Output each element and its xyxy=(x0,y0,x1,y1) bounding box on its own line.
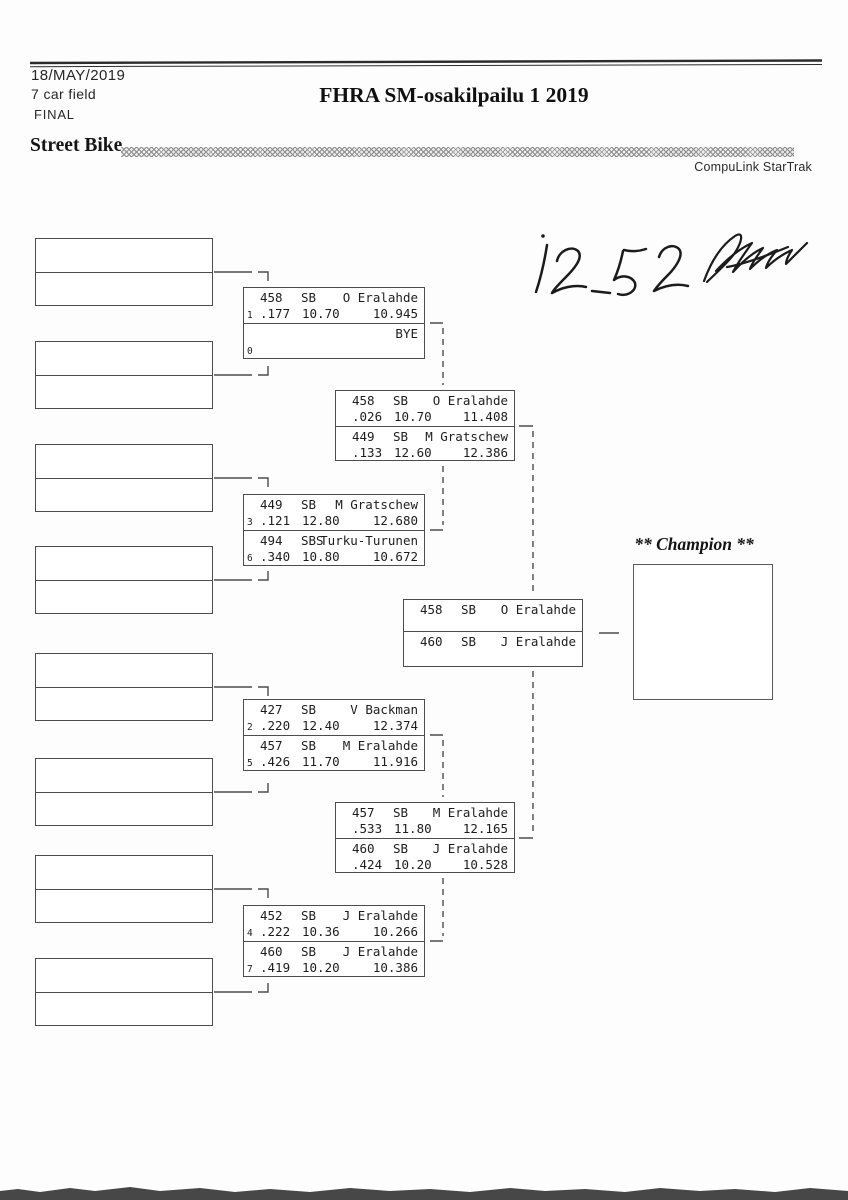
match-line-ids: 460SBJ Eralahde xyxy=(336,841,514,857)
entry-box-divider xyxy=(36,342,212,376)
match-box: 452SBJ Eralahde4.22210.3610.266460SBJ Er… xyxy=(243,905,425,977)
class-name: Street Bike xyxy=(30,135,122,157)
field-drv: M Gratschew xyxy=(335,497,418,512)
field-cls: SB xyxy=(393,805,408,820)
round-label: FINAL xyxy=(31,107,125,122)
field-et: 11.70 xyxy=(302,754,340,769)
event-date: 18/MAY/2019 xyxy=(31,67,125,84)
field-seed: 7 xyxy=(247,964,253,975)
field-rt: .026 xyxy=(352,409,382,424)
match-top-cell: 452SBJ Eralahde4.22210.3610.266 xyxy=(244,906,424,942)
header-meta: 18/MAY/2019 7 car field FINAL xyxy=(31,67,125,122)
field-rt: .424 xyxy=(352,857,382,872)
field-rt: .533 xyxy=(352,821,382,836)
handwritten-signature xyxy=(704,234,807,282)
field-et: 12.40 xyxy=(302,718,340,733)
match-line-times: 3.12112.8012.680 xyxy=(244,513,424,529)
field-res: 12.374 xyxy=(373,718,418,733)
field-drv: M Eralahde xyxy=(433,805,508,820)
event-title: FHRA SM-osakilpailu 1 2019 xyxy=(254,83,654,108)
scanned-bracket-sheet: 18/MAY/2019 7 car field FINAL FHRA SM-os… xyxy=(0,0,848,1200)
field-rt: .133 xyxy=(352,445,382,460)
match-top-cell: 449SBM Gratschew3.12112.8012.680 xyxy=(244,495,424,531)
field-num: 494 xyxy=(260,533,283,548)
field-drv: J Eralahde xyxy=(433,841,508,856)
field-cls: SB xyxy=(393,393,408,408)
match-box: 458SBO Eralahde460SBJ Eralahde xyxy=(403,599,583,667)
entry-box xyxy=(35,238,213,306)
match-line-ids: 449SBM Gratschew xyxy=(244,497,424,513)
field-res: 12.680 xyxy=(373,513,418,528)
field-res: 10.266 xyxy=(373,924,418,939)
field-drv: M Gratschew xyxy=(425,429,508,444)
field-et: 10.36 xyxy=(302,924,340,939)
field-rt: .340 xyxy=(260,549,290,564)
field-drv: Turku-Turunen xyxy=(320,533,418,548)
match-bottom-cell: 460SBJ Eralahde.42410.2010.528 xyxy=(336,839,514,872)
field-seed: 6 xyxy=(247,553,253,564)
match-bottom-cell: 460SBJ Eralahde xyxy=(404,632,582,666)
entry-box xyxy=(35,546,213,614)
match-line-times: 0 xyxy=(244,342,424,358)
match-line-ids: 460SBJ Eralahde xyxy=(244,944,424,960)
match-line-ids: 458SBO Eralahde xyxy=(404,602,582,618)
match-bottom-cell: 460SBJ Eralahde7.41910.2010.386 xyxy=(244,942,424,976)
field-cls: SB xyxy=(461,602,476,617)
entry-box-divider xyxy=(36,547,212,581)
match-box: 449SBM Gratschew3.12112.8012.680494SBSTu… xyxy=(243,494,425,566)
match-bottom-cell: 494SBSTurku-Turunen6.34010.8010.672 xyxy=(244,531,424,565)
field-rt: .419 xyxy=(260,960,290,975)
match-line-ids: 457SBM Eralahde xyxy=(244,738,424,754)
field-num: 449 xyxy=(352,429,375,444)
top-rule xyxy=(30,61,822,67)
field-cls: SB xyxy=(301,944,316,959)
field-cls: SB xyxy=(393,841,408,856)
entry-box-divider xyxy=(36,239,212,273)
match-box: 427SBV Backman2.22012.4012.374457SBM Era… xyxy=(243,699,425,771)
entry-box-divider xyxy=(36,856,212,890)
field-num: 452 xyxy=(260,908,283,923)
match-line-times: 6.34010.8010.672 xyxy=(244,549,424,565)
match-top-cell: 427SBV Backman2.22012.4012.374 xyxy=(244,700,424,736)
field-et: 10.70 xyxy=(302,306,340,321)
match-bottom-cell: 457SBM Eralahde5.42611.7011.916 xyxy=(244,736,424,770)
match-line-ids: 427SBV Backman xyxy=(244,702,424,718)
match-line-ids: BYE xyxy=(244,326,424,342)
match-top-cell: 458SBO Eralahde xyxy=(404,600,582,632)
match-line-ids: 458SBO Eralahde xyxy=(244,290,424,306)
match-box: 458SBO Eralahde.02610.7011.408449SBM Gra… xyxy=(335,390,515,461)
field-cls: SB xyxy=(301,702,316,717)
field-rt: .121 xyxy=(260,513,290,528)
entry-box-divider xyxy=(36,654,212,688)
match-box: 457SBM Eralahde.53311.8012.165460SBJ Era… xyxy=(335,802,515,873)
match-line-times: .02610.7011.408 xyxy=(336,409,514,425)
match-bottom-cell: 449SBM Gratschew.13312.6012.386 xyxy=(336,427,514,460)
field-res: 11.408 xyxy=(463,409,508,424)
field-et: 10.20 xyxy=(394,857,432,872)
field-cls: SB xyxy=(393,429,408,444)
field-num: 460 xyxy=(420,634,443,649)
field-cls: SB xyxy=(301,290,316,305)
field-seed: 2 xyxy=(247,722,253,733)
match-top-cell: 458SBO Eralahde1.17710.7010.945 xyxy=(244,288,424,324)
entry-box xyxy=(35,855,213,923)
field-seed: 3 xyxy=(247,517,253,528)
field-res: 11.916 xyxy=(373,754,418,769)
field-rt: .220 xyxy=(260,718,290,733)
field-et: 10.80 xyxy=(302,549,340,564)
entry-box xyxy=(35,653,213,721)
field-res: 12.386 xyxy=(463,445,508,460)
timing-system-brand: CompuLink StarTrak xyxy=(612,160,812,174)
field-drv: J Eralahde xyxy=(343,908,418,923)
field-num: 457 xyxy=(260,738,283,753)
entry-box-divider xyxy=(36,959,212,993)
field-size: 7 car field xyxy=(31,86,125,102)
field-num: 427 xyxy=(260,702,283,717)
field-num: 460 xyxy=(352,841,375,856)
field-drv: O Eralahde xyxy=(501,602,576,617)
match-line-ids: 452SBJ Eralahde xyxy=(244,908,424,924)
match-line-times: 7.41910.2010.386 xyxy=(244,960,424,976)
entry-box xyxy=(35,958,213,1026)
match-line-times: .13312.6012.386 xyxy=(336,445,514,461)
field-et: 10.20 xyxy=(302,960,340,975)
match-line-times: .42410.2010.528 xyxy=(336,857,514,873)
field-drv: M Eralahde xyxy=(343,738,418,753)
entry-box xyxy=(35,758,213,826)
field-cls: SB xyxy=(461,634,476,649)
field-drv: J Eralahde xyxy=(343,944,418,959)
match-line-times: 1.17710.7010.945 xyxy=(244,306,424,322)
match-line-times: 2.22012.4012.374 xyxy=(244,718,424,734)
match-line-ids: 460SBJ Eralahde xyxy=(404,634,582,650)
field-drv: J Eralahde xyxy=(501,634,576,649)
field-et: 12.80 xyxy=(302,513,340,528)
field-rt: .177 xyxy=(260,306,290,321)
field-num: 460 xyxy=(260,944,283,959)
field-cls: SB xyxy=(301,738,316,753)
match-line-ids: 494SBSTurku-Turunen xyxy=(244,533,424,549)
entry-box-divider xyxy=(36,759,212,793)
match-top-cell: 458SBO Eralahde.02610.7011.408 xyxy=(336,391,514,427)
field-seed: 1 xyxy=(247,310,253,321)
match-box: 458SBO Eralahde1.17710.7010.945BYE0 xyxy=(243,287,425,359)
match-top-cell: 457SBM Eralahde.53311.8012.165 xyxy=(336,803,514,839)
match-line-ids: 458SBO Eralahde xyxy=(336,393,514,409)
field-num: 458 xyxy=(420,602,443,617)
field-seed: 5 xyxy=(247,758,253,769)
field-seed: 0 xyxy=(247,346,253,357)
champion-box xyxy=(633,564,773,700)
field-et: 12.60 xyxy=(394,445,432,460)
field-res: 10.528 xyxy=(463,857,508,872)
field-rt: .426 xyxy=(260,754,290,769)
field-res: 10.672 xyxy=(373,549,418,564)
field-drv: O Eralahde xyxy=(343,290,418,305)
field-seed: 4 xyxy=(247,928,253,939)
match-bottom-cell: BYE0 xyxy=(244,324,424,358)
match-line-times: 5.42611.7011.916 xyxy=(244,754,424,770)
class-divider-pattern xyxy=(121,147,794,157)
field-res: 10.386 xyxy=(373,960,418,975)
entry-box-divider xyxy=(36,445,212,479)
field-num: 449 xyxy=(260,497,283,512)
field-et: 10.70 xyxy=(394,409,432,424)
field-num: 457 xyxy=(352,805,375,820)
match-line-ids: 457SBM Eralahde xyxy=(336,805,514,821)
field-drv: O Eralahde xyxy=(433,393,508,408)
champion-label: ** Champion ** xyxy=(608,534,780,555)
field-drv: BYE xyxy=(395,326,418,341)
field-res: 12.165 xyxy=(463,821,508,836)
entry-box xyxy=(35,444,213,512)
field-cls: SB xyxy=(301,908,316,923)
field-et: 11.80 xyxy=(394,821,432,836)
field-res: 10.945 xyxy=(373,306,418,321)
field-drv: V Backman xyxy=(350,702,418,717)
field-num: 458 xyxy=(260,290,283,305)
field-rt: .222 xyxy=(260,924,290,939)
entry-box xyxy=(35,341,213,409)
field-num: 458 xyxy=(352,393,375,408)
match-line-ids: 449SBM Gratschew xyxy=(336,429,514,445)
handwritten-time-note xyxy=(536,234,688,295)
field-cls: SB xyxy=(301,497,316,512)
match-line-times: 4.22210.3610.266 xyxy=(244,924,424,940)
match-line-times: .53311.8012.165 xyxy=(336,821,514,837)
scan-bottom-edge xyxy=(0,1187,848,1200)
